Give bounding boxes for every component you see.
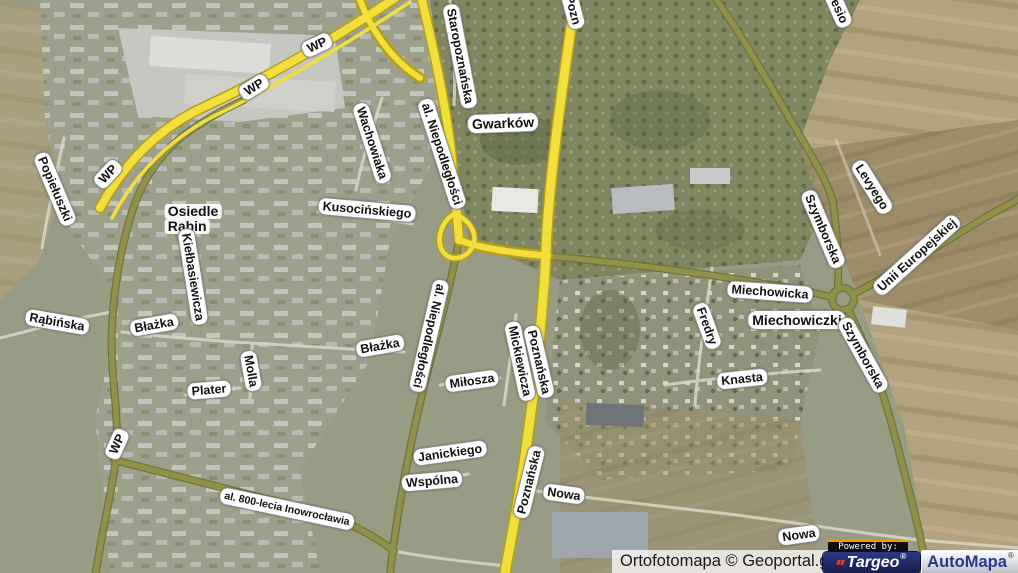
automapa-registered-mark: ® [1008, 551, 1014, 561]
map-label-molla-10: Molla [238, 349, 263, 393]
map-label-szymborska-27: Szymborska [835, 314, 891, 396]
map-label-kusoci-skiego-14: Kusocińskiego [317, 197, 417, 224]
map-label-al-niepodleg-o-ci-16: al. Niepodległości [415, 96, 468, 212]
targeo-text: Targeo [847, 554, 900, 572]
targeo-registered-mark: ® [900, 552, 906, 562]
powered-by-text: Powered by: [838, 542, 898, 552]
map-label-jesio-20: Jesio [821, 0, 855, 31]
map-label-kie-basiewicza-6: Kiełbasiewicza [176, 227, 209, 327]
map-viewport[interactable]: WPWPWPWPPopiełuszkiOsiedleRąbinKiełbasie… [0, 0, 1018, 573]
map-label-wp-2: WP [90, 156, 125, 192]
map-label-levyego-21: Levyego [848, 156, 895, 217]
map-label-wp-3: WP [102, 426, 132, 463]
map-label-popie-uszki-4: Popiełuszki [31, 149, 78, 229]
map-label-staropozna-ska-15: Staropoznańska [441, 2, 479, 110]
map-label-knasta-28: Knasta [715, 367, 768, 390]
map-label-plater-11: Plater [186, 379, 232, 401]
map-labels-layer: WPWPWPWPPopiełuszkiOsiedleRąbinKiełbasie… [0, 0, 1018, 573]
map-label-wachowiaka-13: Wachowiaka [350, 100, 393, 186]
map-label-pozn-19: Pozn [559, 0, 587, 32]
map-label-wp-0: WP [299, 30, 336, 60]
map-label-nowa-36: Nowa [776, 523, 821, 547]
map-label-unii-europejskiej-23: Unii Europejskiej [870, 211, 965, 299]
automapa-logo[interactable]: AutoMapa ® [921, 550, 1018, 573]
targeo-mark-icon [837, 558, 846, 567]
map-label-gwark-w-18: Gwarków [467, 112, 540, 135]
map-label-fredry-26: Fredry [690, 300, 724, 352]
map-label-al-800-lecia-inowroc-awia-12: al. 800-lecia Inowrocławia [218, 486, 357, 532]
map-label-al-niepodleg-o-ci-17: al. Niepodległości [407, 277, 451, 394]
map-label-b-a-ka-8: Błażka [128, 312, 180, 338]
map-label-szymborska-22: Szymborska [798, 187, 847, 271]
map-label-b-a-ka-9: Błażka [354, 333, 406, 359]
map-label-nowa-35: Nowa [541, 482, 586, 506]
map-label-pozna-ska-32: Poznańska [511, 443, 547, 520]
automapa-text: AutoMapa [927, 553, 1007, 572]
map-label-wp-1: WP [236, 71, 273, 103]
map-label-wsp-lna-34: Wspólna [400, 469, 463, 492]
map-label-miechowiczki-25: Miechowiczki [747, 310, 846, 330]
map-label-mi-osza-31: Miłosza [443, 368, 500, 394]
map-label-janickiego-33: Janickiego [412, 439, 488, 467]
map-label-r-bi-ska-7: Rąbińska [23, 307, 91, 336]
targeo-logo[interactable]: Targeo ® [823, 552, 920, 573]
map-label-miechowicka-24: Miechowicka [726, 280, 814, 304]
